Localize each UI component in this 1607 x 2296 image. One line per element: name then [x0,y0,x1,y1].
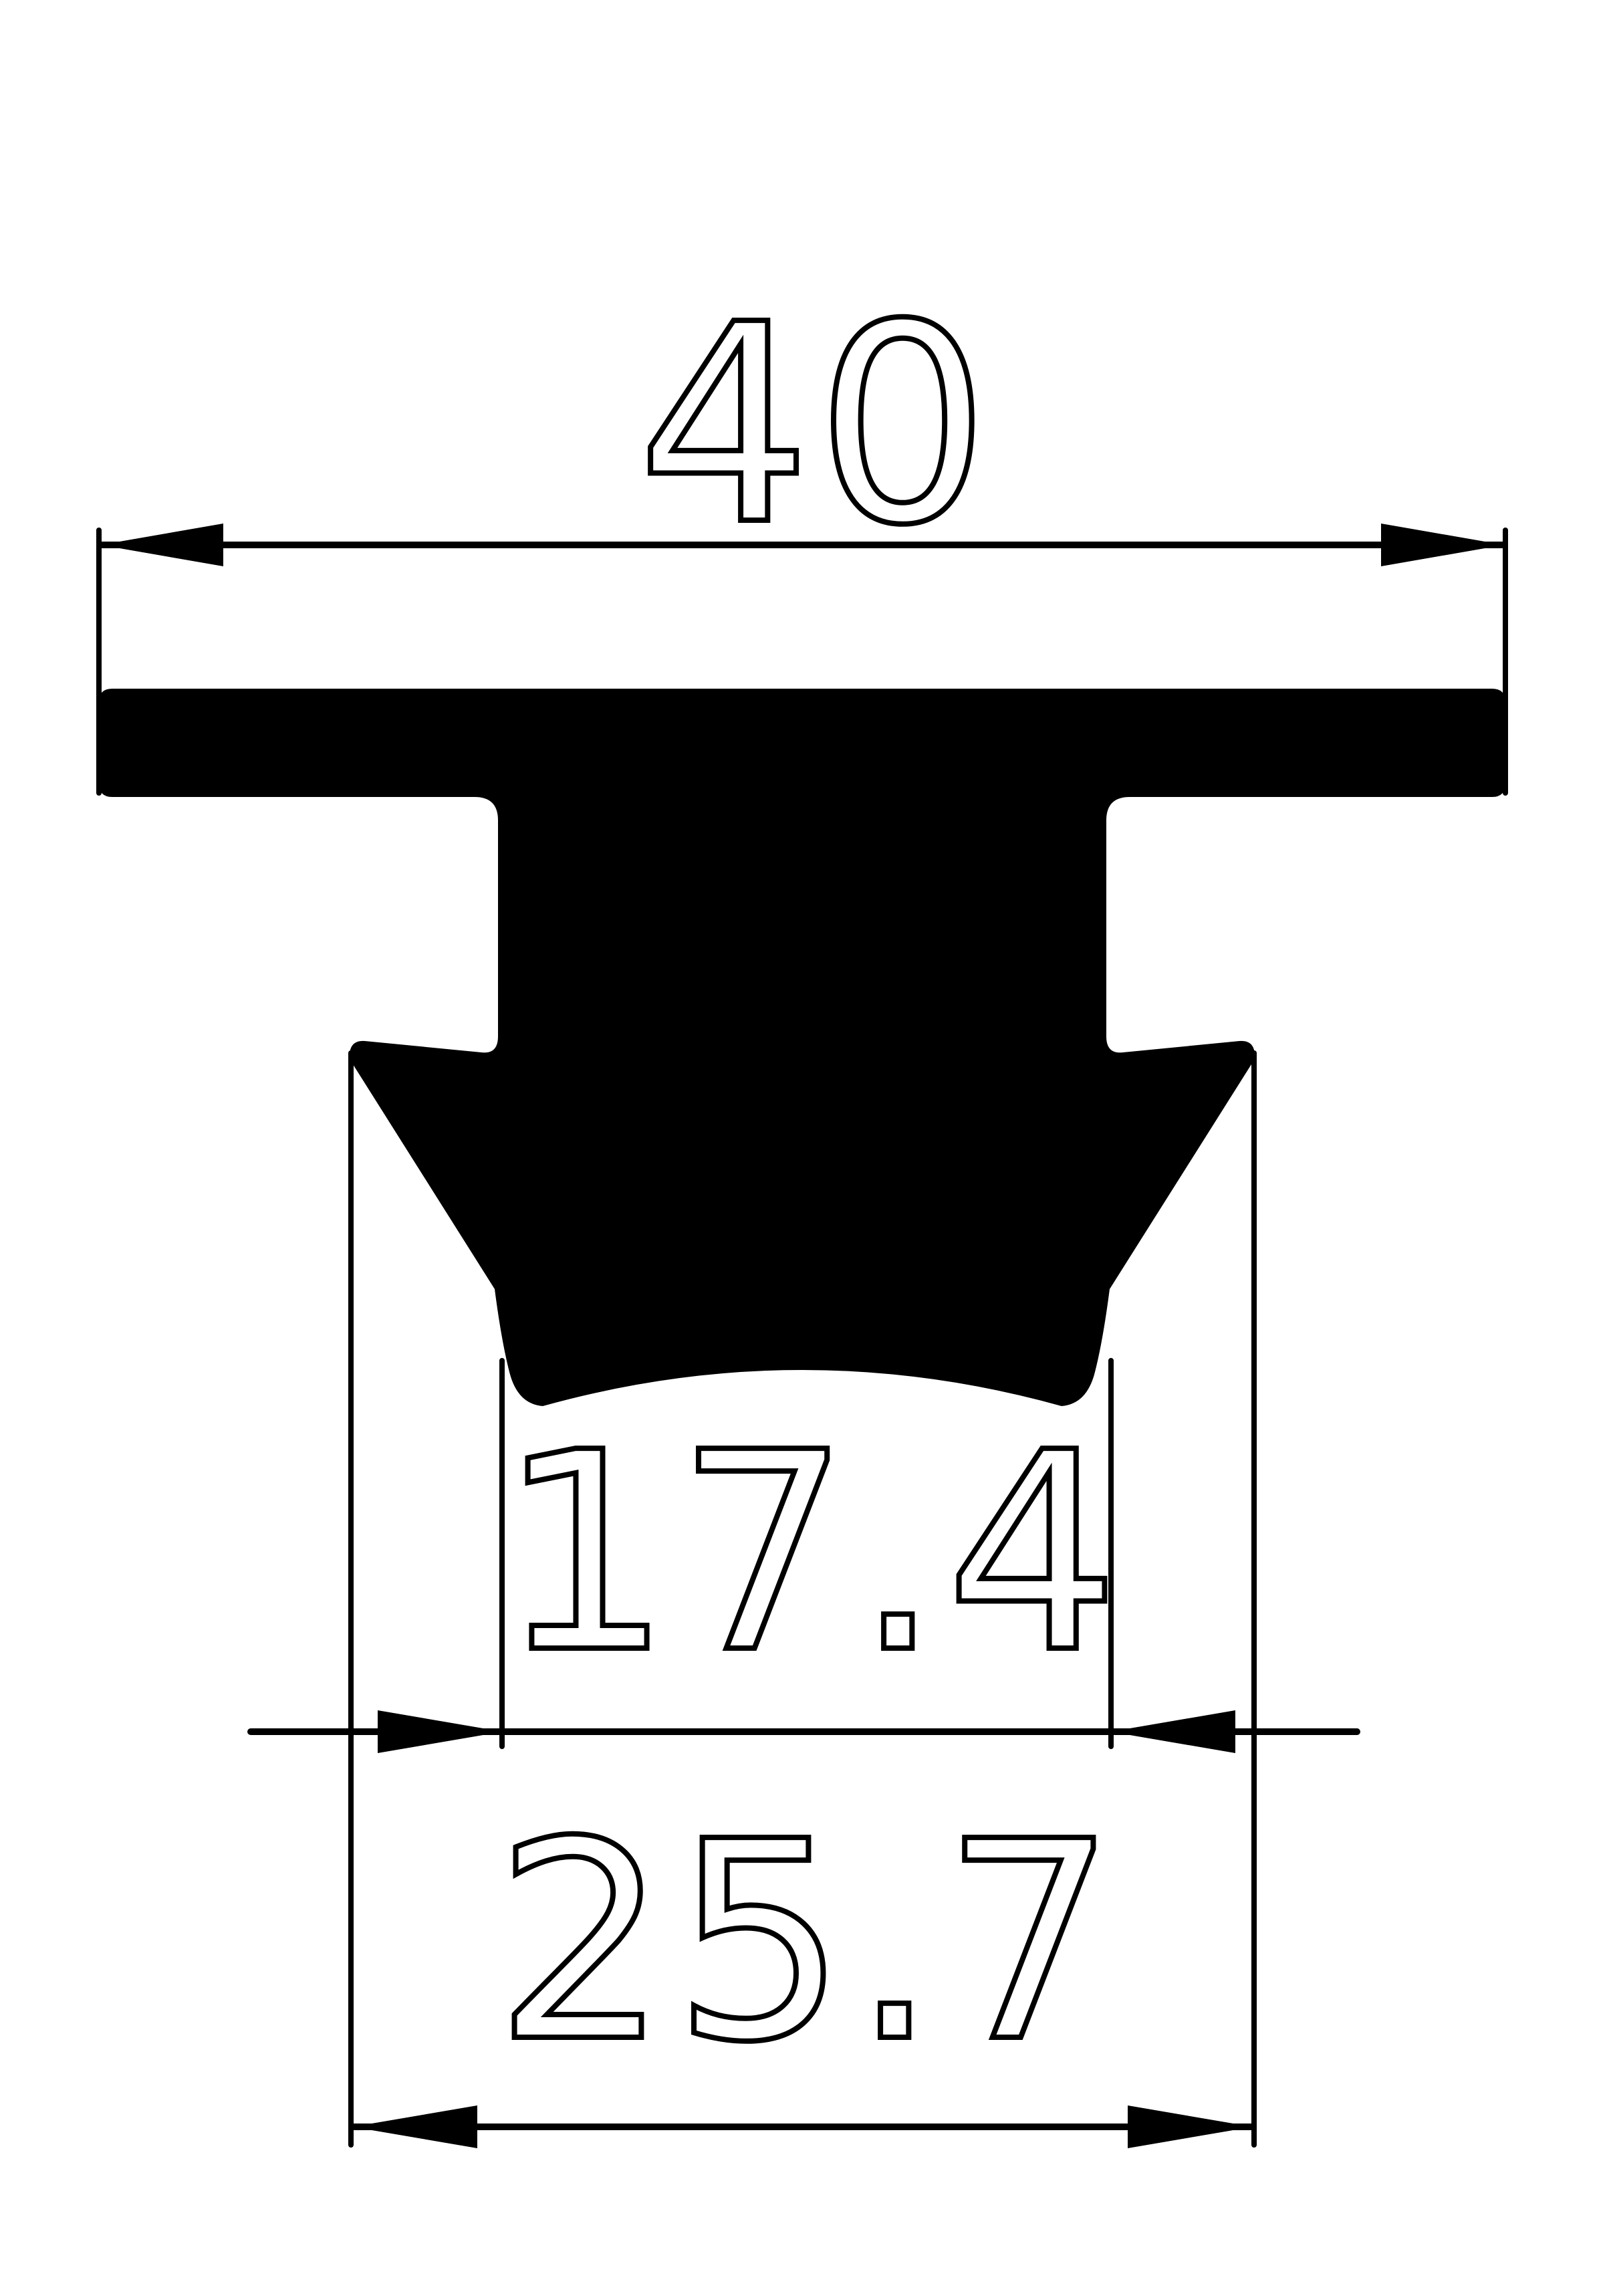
arrowhead-inward-right-icon [1110,1710,1235,1753]
dimension-174 [251,1710,1357,1753]
arrowhead-out-left-icon [352,2105,477,2148]
technical-drawing-canvas: 40 17.4 25.7 [0,0,1607,2296]
arrowhead-out-right-icon [1128,2105,1253,2148]
arrowhead-right-icon [1381,524,1504,566]
dimension-value-groove-width: 17.4 [498,1416,1124,1690]
dimension-value-overall-width: 40 [637,288,994,562]
arrowhead-left-icon [100,524,223,566]
profile-silhouette [99,689,1505,1406]
dimension-257 [352,2105,1253,2148]
dimension-value-base-width: 25.7 [495,1805,1121,2079]
arrowhead-inward-left-icon [378,1710,503,1753]
